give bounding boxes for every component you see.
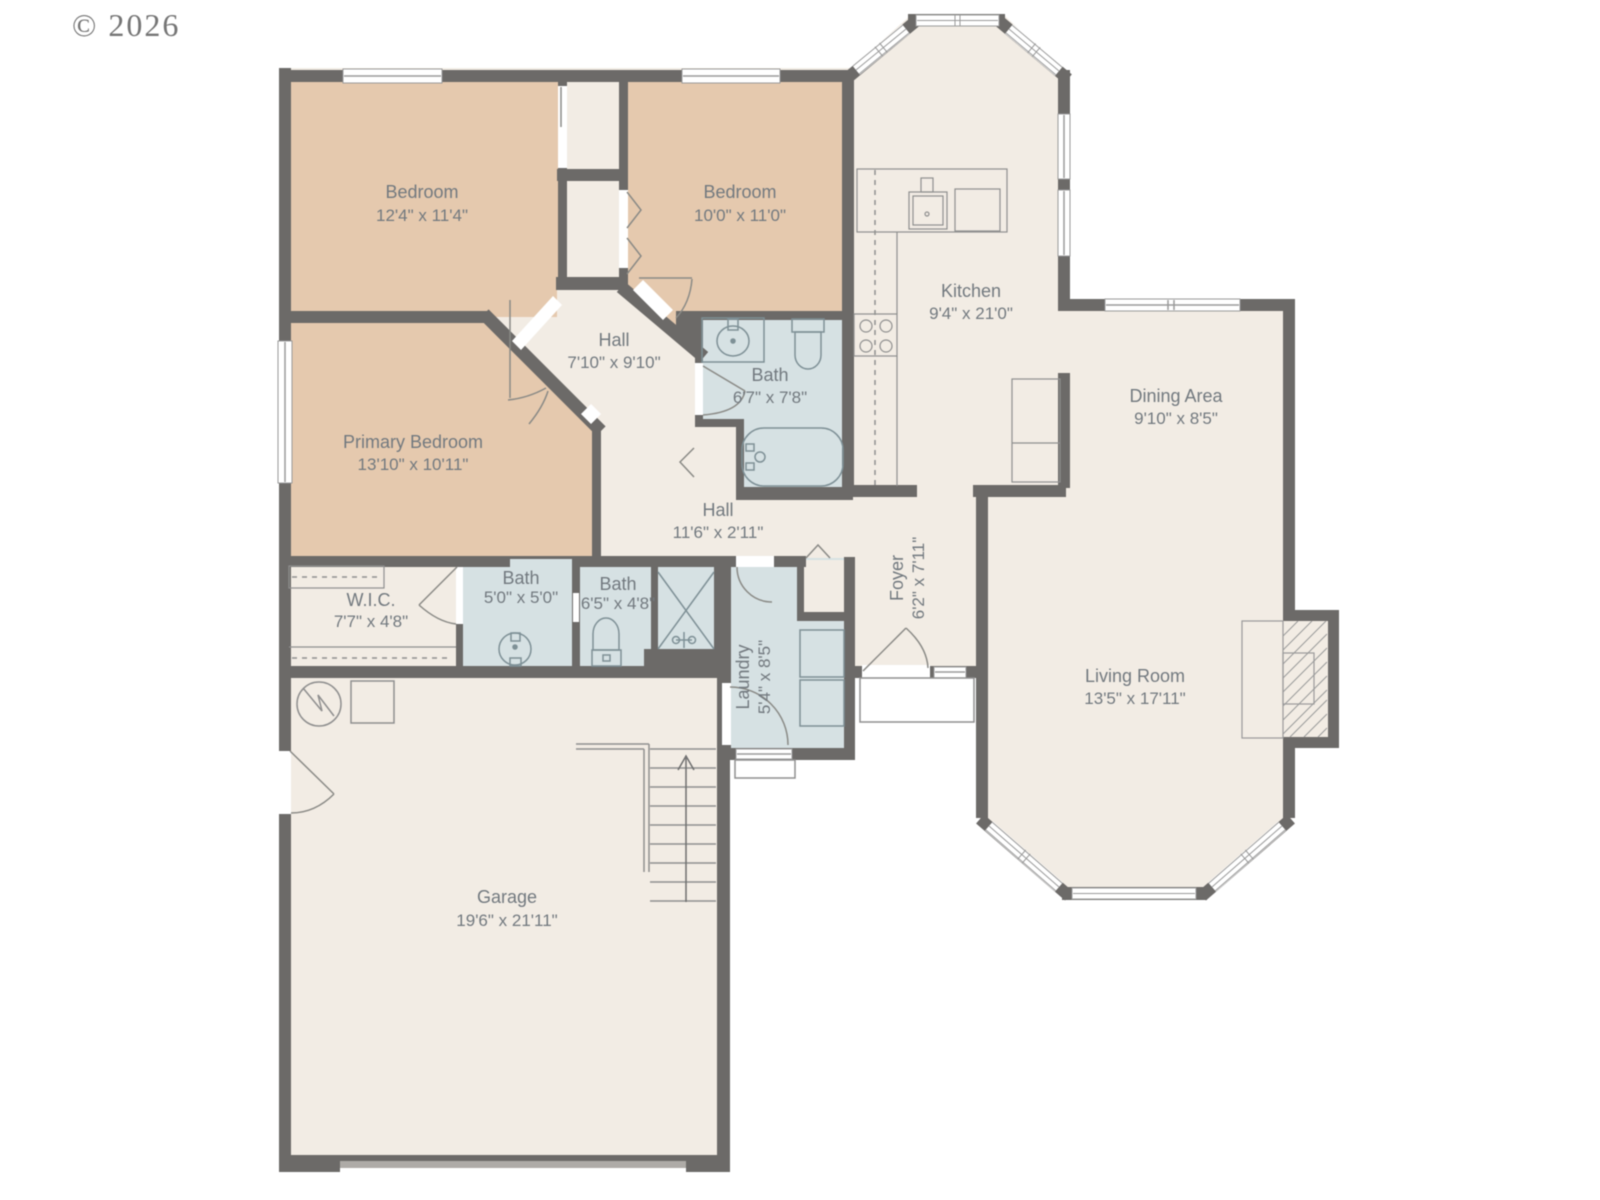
svg-text:19'6" x 21'11": 19'6" x 21'11" — [456, 911, 557, 930]
svg-text:Garage: Garage — [477, 887, 537, 907]
svg-text:Bath: Bath — [502, 568, 539, 588]
svg-text:7'10" x 9'10": 7'10" x 9'10" — [567, 353, 660, 372]
svg-text:W.I.C.: W.I.C. — [347, 590, 396, 610]
svg-text:11'6" x 2'11": 11'6" x 2'11" — [673, 523, 764, 542]
svg-text:13'10" x 10'11": 13'10" x 10'11" — [358, 455, 469, 474]
svg-text:7'7" x 4'8": 7'7" x 4'8" — [334, 612, 408, 631]
svg-text:9'4" x 21'0": 9'4" x 21'0" — [929, 304, 1013, 323]
svg-text:Dining Area: Dining Area — [1129, 386, 1223, 406]
svg-text:Bedroom: Bedroom — [385, 182, 458, 202]
svg-text:12'4" x 11'4": 12'4" x 11'4" — [376, 206, 468, 225]
svg-text:5'4" x 8'5": 5'4" x 8'5" — [755, 640, 774, 714]
svg-text:10'0" x 11'0": 10'0" x 11'0" — [694, 206, 786, 225]
svg-text:6'5" x 4'8": 6'5" x 4'8" — [581, 594, 655, 613]
svg-text:9'10" x 8'5": 9'10" x 8'5" — [1134, 409, 1218, 428]
svg-text:Hall: Hall — [702, 500, 733, 520]
svg-text:6'7" x 7'8": 6'7" x 7'8" — [733, 388, 807, 407]
svg-text:Hall: Hall — [598, 330, 629, 350]
svg-text:Foyer: Foyer — [887, 555, 907, 601]
svg-text:Bath: Bath — [599, 574, 636, 594]
svg-text:Primary Bedroom: Primary Bedroom — [343, 432, 483, 452]
svg-text:Kitchen: Kitchen — [941, 281, 1001, 301]
svg-text:6'2" x 7'11": 6'2" x 7'11" — [909, 537, 928, 620]
svg-text:Bath: Bath — [751, 365, 788, 385]
svg-text:Living Room: Living Room — [1085, 666, 1185, 686]
svg-text:Laundry: Laundry — [733, 644, 753, 709]
svg-text:13'5" x 17'11": 13'5" x 17'11" — [1084, 689, 1185, 708]
svg-text:5'0" x 5'0": 5'0" x 5'0" — [484, 588, 558, 607]
svg-text:Bedroom: Bedroom — [703, 182, 776, 202]
svg-text:© 2026: © 2026 — [72, 7, 180, 43]
